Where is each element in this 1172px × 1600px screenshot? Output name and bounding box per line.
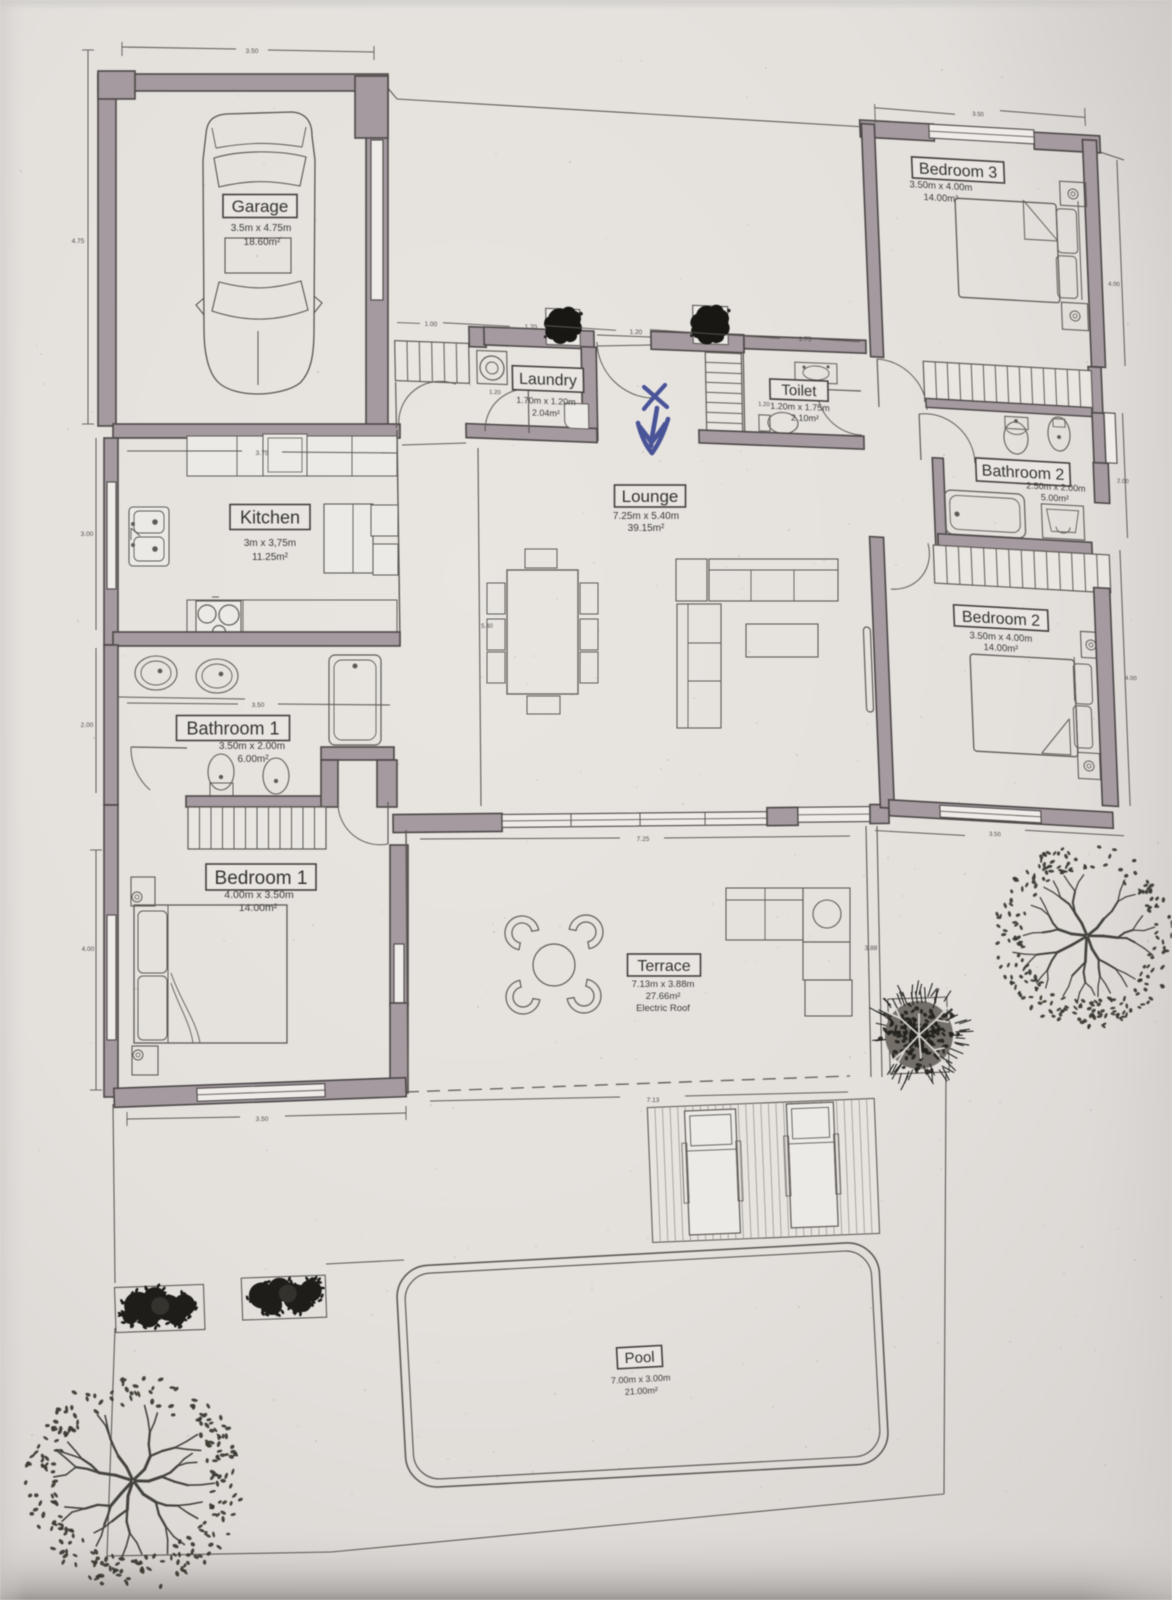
svg-text:Terrace: Terrace [637, 958, 690, 975]
svg-text:3.50: 3.50 [246, 48, 259, 55]
svg-text:Bedroom 1: Bedroom 1 [215, 868, 308, 889]
svg-text:2.10m²: 2.10m² [791, 413, 819, 424]
svg-text:3.00: 3.00 [81, 531, 94, 538]
svg-text:14.00m²: 14.00m² [239, 902, 278, 914]
svg-text:4.75: 4.75 [72, 238, 85, 245]
svg-text:1.20: 1.20 [630, 329, 643, 336]
svg-text:Electric Roof: Electric Roof [636, 1003, 690, 1014]
svg-text:4.00: 4.00 [82, 946, 95, 953]
svg-text:1.20: 1.20 [489, 390, 501, 396]
svg-text:1.75: 1.75 [799, 336, 812, 343]
svg-text:3.50: 3.50 [989, 832, 1002, 839]
svg-text:6.00m²: 6.00m² [237, 754, 269, 765]
svg-text:2.00: 2.00 [1117, 479, 1130, 486]
svg-text:7.25: 7.25 [637, 836, 650, 843]
svg-text:3.75: 3.75 [256, 450, 269, 457]
svg-text:Pool: Pool [624, 1349, 655, 1368]
svg-text:27.66m²: 27.66m² [646, 991, 681, 1002]
svg-text:3.50m x 2.00m: 3.50m x 2.00m [219, 741, 285, 752]
svg-text:Bathroom 1: Bathroom 1 [186, 719, 279, 739]
svg-text:Lounge: Lounge [622, 487, 679, 506]
svg-text:4.00m x 3.50m: 4.00m x 3.50m [224, 889, 294, 901]
svg-text:3.50: 3.50 [256, 1116, 269, 1123]
svg-text:Kitchen: Kitchen [240, 508, 300, 528]
svg-text:7.13: 7.13 [647, 1097, 660, 1104]
svg-text:5.00m²: 5.00m² [1041, 492, 1069, 504]
svg-text:3.88: 3.88 [865, 945, 878, 952]
svg-text:7.13m x 3.88m: 7.13m x 3.88m [632, 979, 695, 990]
svg-text:11.25m²: 11.25m² [252, 552, 289, 563]
svg-text:1.70: 1.70 [525, 324, 538, 331]
svg-text:4.00: 4.00 [1108, 282, 1121, 289]
svg-text:Garage: Garage [232, 197, 289, 216]
svg-text:Toilet: Toilet [781, 382, 817, 400]
svg-text:Laundry: Laundry [519, 371, 577, 390]
svg-text:21.00m²: 21.00m² [625, 1385, 659, 1397]
svg-text:1.00: 1.00 [425, 321, 438, 328]
svg-text:3.5m x 4.75m: 3.5m x 4.75m [231, 223, 292, 234]
svg-text:3.50: 3.50 [252, 702, 265, 709]
svg-text:4.00: 4.00 [1125, 676, 1138, 683]
svg-text:3.50: 3.50 [972, 112, 985, 119]
svg-text:2.04m²: 2.04m² [532, 407, 560, 418]
svg-text:7.25m x 5.40m: 7.25m x 5.40m [613, 511, 679, 522]
svg-text:14.00m²: 14.00m² [983, 642, 1018, 655]
svg-text:18.60m²: 18.60m² [244, 237, 281, 248]
svg-text:1.20: 1.20 [758, 402, 770, 408]
svg-text:3m x 3,75m: 3m x 3,75m [244, 538, 296, 549]
svg-text:2.00: 2.00 [81, 722, 94, 729]
svg-text:14.00m²: 14.00m² [923, 192, 958, 205]
svg-text:39.15m²: 39.15m² [628, 523, 665, 534]
